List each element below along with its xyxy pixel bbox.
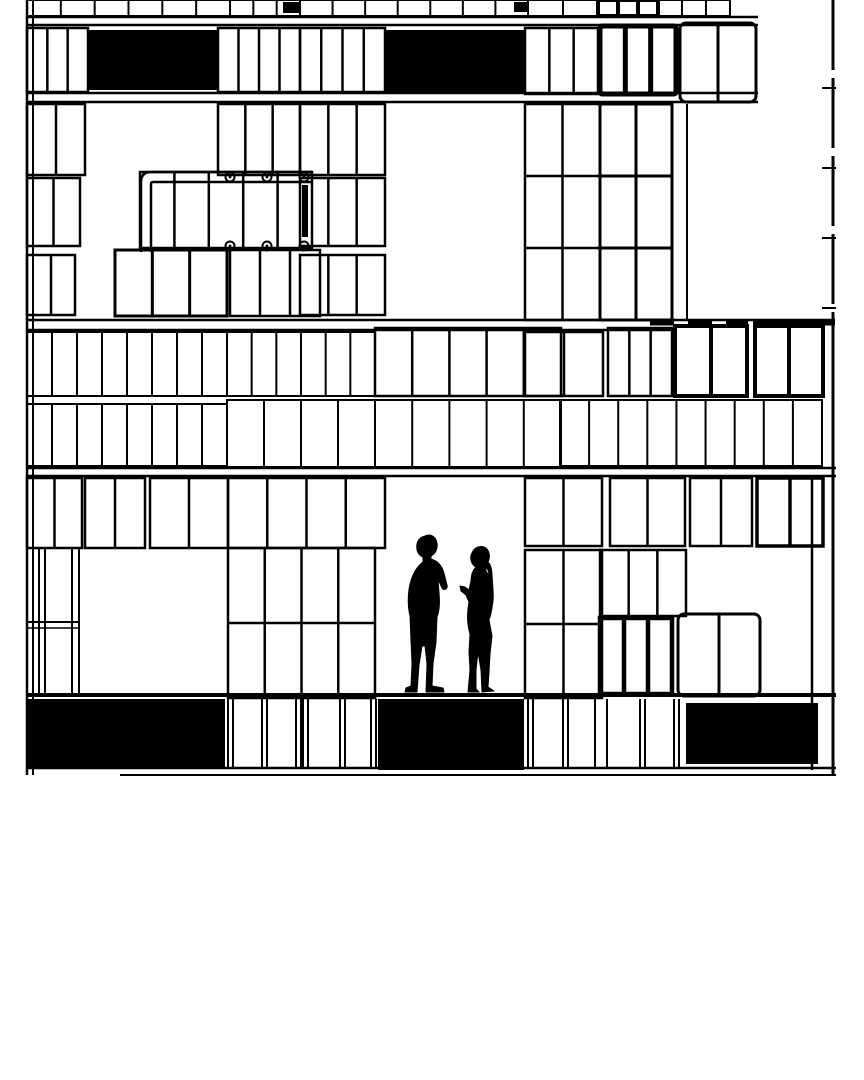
screw-circle-dot <box>229 245 232 248</box>
black-spandrel-panel <box>88 30 218 90</box>
black-spandrel-panel <box>302 185 308 237</box>
black-spandrel-panel <box>514 2 529 12</box>
black-spandrel-panel <box>378 699 524 770</box>
screw-circle-dot <box>303 245 306 248</box>
black-spandrel-panel <box>686 703 818 764</box>
screw-circle-dot <box>266 176 269 179</box>
black-spandrel-panel <box>27 699 225 768</box>
screw-circle-dot <box>266 245 269 248</box>
black-spandrel-panel <box>283 2 299 13</box>
black-spandrel-panel <box>385 30 525 92</box>
elevation-drawing-page <box>0 0 864 1080</box>
screw-circle-dot <box>229 176 232 179</box>
screw-circle-dot <box>303 176 306 179</box>
building-elevation-drawing <box>0 0 864 1080</box>
